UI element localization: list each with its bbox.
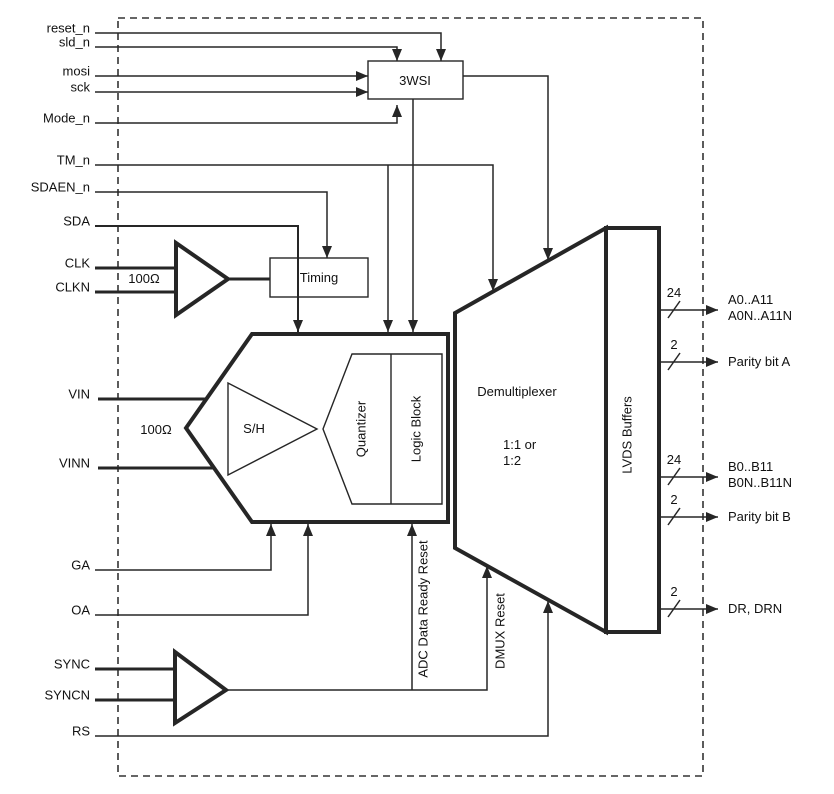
pin-rs: RS xyxy=(72,723,90,738)
pin-syncn: SYNCN xyxy=(44,687,90,702)
wire-3wsi-to-demux xyxy=(463,76,548,260)
output-parity-b-label: Parity bit B xyxy=(728,509,791,524)
block-demultiplexer xyxy=(455,228,606,632)
label-3wsi: 3WSI xyxy=(399,73,431,88)
output-parity-a-label: Parity bit A xyxy=(728,354,790,369)
output-parity-b-bus-width: 2 xyxy=(670,492,677,507)
wire-mode_n xyxy=(95,105,397,123)
label-demux-ratio-line1: 1:1 or xyxy=(503,437,537,452)
shape-sync-buffer-triangle xyxy=(175,652,226,723)
wire-ga xyxy=(95,524,271,570)
output-dr-bus-width: 2 xyxy=(670,584,677,599)
output-parity-a-bus-width: 2 xyxy=(670,337,677,352)
pin-tm_n: TM_n xyxy=(57,152,90,167)
adc-block-diagram: reset_nsld_nmosisckMode_nTM_nSDAEN_nSDAC… xyxy=(0,0,834,794)
label-clk-termination: 100Ω xyxy=(128,271,160,286)
pin-clk: CLK xyxy=(65,255,91,270)
output-data-a-bus-width: 24 xyxy=(667,285,681,300)
pin-sda: SDA xyxy=(63,213,90,228)
label-demultiplexer: Demultiplexer xyxy=(477,384,557,399)
pin-sdaen_n: SDAEN_n xyxy=(31,179,90,194)
label-vin-termination: 100Ω xyxy=(140,422,172,437)
output-data-b-label: B0..B11 xyxy=(728,459,773,474)
output-dr-label: DR, DRN xyxy=(728,601,782,616)
pin-sld_n: sld_n xyxy=(59,34,90,49)
pin-mode_n: Mode_n xyxy=(43,110,90,125)
pin-reset_n: reset_n xyxy=(47,20,90,35)
label-quantizer: Quantizer xyxy=(353,400,368,457)
shape-clk-buffer-triangle xyxy=(176,243,228,315)
pin-mosi: mosi xyxy=(63,63,91,78)
wire-syncbuf-to-dmux-reset xyxy=(226,566,487,690)
output-data-b-label: B0N..B11N xyxy=(728,475,792,490)
label-logic-block: Logic Block xyxy=(408,395,423,462)
label-demux-ratio-line2: 1:2 xyxy=(503,453,521,468)
label-timing: Timing xyxy=(300,270,339,285)
label-lvds-buffers: LVDS Buffers xyxy=(619,396,634,474)
label-adc-data-ready-reset: ADC Data Ready Reset xyxy=(415,540,430,678)
output-data-a-label: A0N..A11N xyxy=(728,308,792,323)
pin-sck: sck xyxy=(71,79,91,94)
label-dmux-reset: DMUX Reset xyxy=(492,593,507,669)
pin-clkn: CLKN xyxy=(55,279,90,294)
label-sh: S/H xyxy=(243,421,265,436)
pin-vin: VIN xyxy=(68,386,90,401)
pin-vinn: VINN xyxy=(59,455,90,470)
wire-sld_n xyxy=(95,47,397,61)
pin-oa: OA xyxy=(71,602,90,617)
pin-sync: SYNC xyxy=(54,656,90,671)
pin-ga: GA xyxy=(71,557,90,572)
output-data-b-bus-width: 24 xyxy=(667,452,681,467)
block-diagram-canvas: reset_nsld_nmosisckMode_nTM_nSDAEN_nSDAC… xyxy=(0,0,834,794)
output-data-a-label: A0..A11 xyxy=(728,292,773,307)
